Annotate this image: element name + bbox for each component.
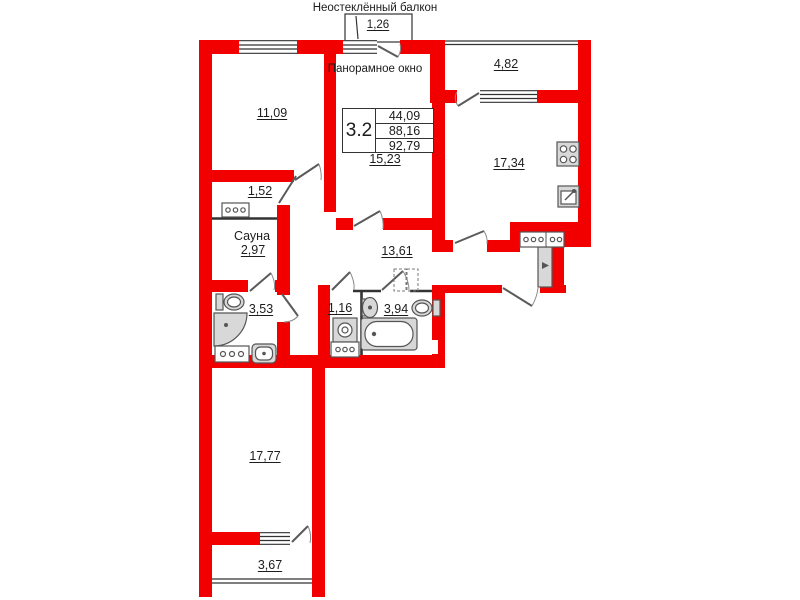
wardrobe-icon [222,203,249,217]
bottom-balcony-railing [212,579,312,583]
window-icon [480,90,537,103]
room-area-main-bath: 3,94 [384,302,408,316]
door-swing-icon [382,271,409,290]
room-area-balcony-bottom: 3,67 [258,558,282,572]
balcony-top-area: 1,26 [367,19,389,31]
door-swing-icon [332,272,354,290]
panoramic-window-label: Панорамное окно [328,63,423,75]
kitchen-sink-icon [558,186,579,207]
floor-plan: Неостеклённый балкон 1,26 Панорамное окн… [0,0,800,600]
bathtub-icon [361,318,417,350]
room-area-loggia: 4,82 [494,57,518,71]
wardrobe-icon [520,232,564,247]
door-swing-icon [282,294,298,322]
room-area-bedroom-bottom: 17,77 [249,449,280,463]
panoramic-window-icon [343,40,377,54]
plan-type: 3.2 [343,109,376,152]
door-swing-icon [292,526,311,543]
apartment-stats-box: 3.2 44,09 88,16 92,79 [342,108,434,153]
door-swing-icon [250,273,275,291]
room-area-hallway: 13,61 [381,244,412,258]
entrance-door-icon [503,247,552,306]
door-swing-icon [455,231,487,244]
sink-icon [362,298,378,318]
plumbing-risers [394,269,418,291]
unglazed-balcony-label: Неостеклённый балкон [313,2,438,14]
sink-icon [252,344,276,363]
stats-area-1: 44,09 [376,109,433,124]
toilet-icon [216,294,244,310]
wall-niche [426,340,438,354]
room-area-kitchen: 17,34 [493,156,524,170]
door-swing-icon [455,92,479,106]
room-area-living: 15,23 [369,152,400,166]
washing-machine-icon [333,318,357,342]
window-icon [239,40,297,54]
window-icon [260,532,290,545]
toilet-icon [412,300,440,316]
room-area-corridor: 1,52 [248,184,272,198]
door-swing-icon [295,164,321,180]
door-swing-icon [378,44,401,57]
stove-icon [557,142,579,166]
room-area-bedroom-top: 11,09 [257,106,287,120]
floor-plan-drawing [0,0,800,600]
stats-area-3: 92,79 [376,139,433,153]
wardrobe-icon [215,346,249,362]
door-swing-icon [354,211,383,229]
stats-area-2: 88,16 [376,124,433,139]
wardrobe-icon [331,342,359,357]
room-area-shower-bath: 3,53 [249,302,273,316]
leader-line [356,16,358,39]
room-area-laundry: 1,16 [328,301,352,315]
room-area-sauna: 2,97 [241,243,265,257]
sauna-label: Сауна [234,229,270,243]
corner-shower-icon [214,313,247,346]
right-loggia-outline [445,41,591,45]
